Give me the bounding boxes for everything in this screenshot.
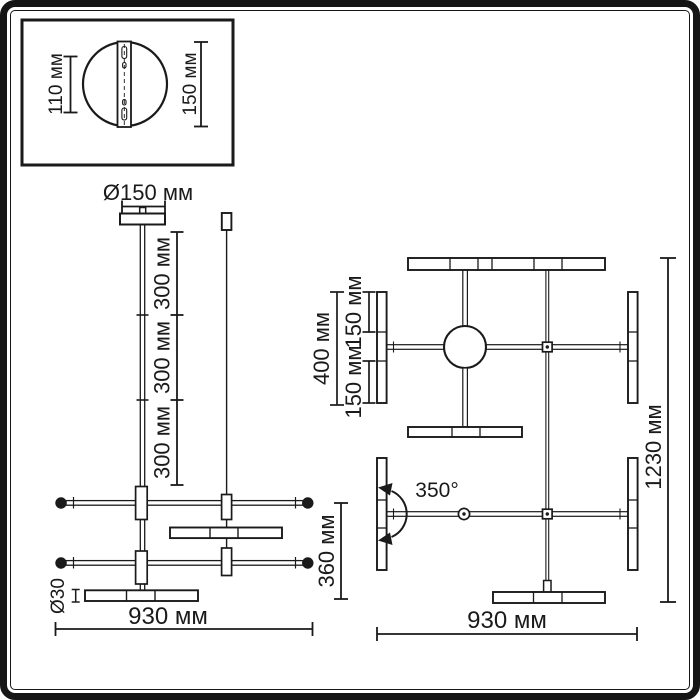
- dim-top-width: 930 мм: [377, 607, 637, 641]
- dim-label-bar-length: 400 мм: [309, 312, 334, 385]
- arm-end-ball: [55, 497, 66, 508]
- dim-bar-half-upper: 150 мм: [341, 275, 376, 348]
- cable-sleeve: [222, 495, 232, 520]
- side-view: Ø150 мм 300 мм 300 мм 300 мм: [48, 180, 348, 636]
- lower-left-lamp-bar: [377, 458, 387, 570]
- canopy: [120, 214, 165, 225]
- cable-sleeve: [222, 548, 232, 576]
- dim-label-plate-110: 110 мм: [46, 53, 67, 115]
- upper-cross-arm: [387, 342, 629, 353]
- middle-lamp-bar: [170, 528, 282, 539]
- lower-arm: [55, 557, 313, 569]
- dim-label-tube-diameter: Ø30: [48, 578, 69, 614]
- left-lamp-bar: [377, 292, 387, 403]
- upper-arm: [55, 497, 313, 509]
- stem-up: [463, 270, 468, 327]
- inset-detail: 110 мм 150 мм: [22, 20, 233, 165]
- bottom-lamp-bar: [85, 590, 198, 601]
- dim-label-top-width: 930 мм: [467, 607, 547, 634]
- arm-end-ball: [302, 497, 313, 508]
- dim-body-height: 360 мм: [314, 503, 348, 599]
- dim-canopy-diameter: Ø150 мм: [103, 180, 193, 213]
- lower-connector: [543, 509, 553, 519]
- pole-joint: [544, 581, 551, 593]
- top-view: 400 мм 150 мм 150 мм: [309, 258, 676, 641]
- dim-label-plate-150: 150 мм: [180, 52, 201, 115]
- main-rod: [137, 225, 149, 591]
- dim-label-side-width: 930 мм: [128, 603, 208, 630]
- dim-label-rod-segment-1: 300 мм: [150, 237, 175, 310]
- dimension-drawing: 110 мм 150 мм Ø150 мм: [0, 0, 700, 700]
- lower-cross-arm: [387, 509, 629, 520]
- dim-label-bar-half-upper: 150 мм: [341, 275, 366, 348]
- rod-sleeve: [136, 487, 148, 520]
- inner-lamp-bar: [408, 427, 522, 437]
- dim-label-body-height: 360 мм: [314, 514, 339, 587]
- arm-pivot: [458, 508, 469, 519]
- dim-label-rod-segment-3: 300 мм: [150, 406, 175, 479]
- dim-label-rotation: 350°: [415, 479, 458, 502]
- arm-end-ball: [302, 557, 313, 568]
- dim-label-rod-segment-2: 300 мм: [150, 321, 175, 394]
- dim-rod-segments: 300 мм 300 мм 300 мм: [150, 232, 184, 485]
- top-lamp-bar: [408, 258, 605, 270]
- dim-tube-diameter: Ø30: [48, 578, 80, 614]
- dim-bar-length: 400 мм: [309, 292, 344, 405]
- stem-down: [463, 368, 468, 427]
- dim-label-bar-half-lower: 150 мм: [341, 345, 366, 418]
- cable-connector: [222, 213, 232, 230]
- bottom-lamp-bar-top-view: [493, 592, 605, 603]
- dim-bar-half-lower: 150 мм: [341, 345, 376, 418]
- top-view-pole: [546, 270, 549, 592]
- rod-sleeve: [136, 551, 148, 584]
- dim-total-length: 1230 мм: [641, 258, 676, 602]
- dim-side-width: 930 мм: [56, 603, 313, 636]
- arm-end-ball: [55, 557, 66, 568]
- dim-label-total-length: 1230 мм: [641, 404, 666, 489]
- dim-label-canopy-diameter: Ø150 мм: [103, 180, 193, 205]
- right-lamp-bar: [628, 292, 638, 403]
- canopy-top-view: [444, 326, 486, 368]
- lower-right-lamp-bar: [628, 458, 638, 570]
- upper-connector: [543, 342, 553, 352]
